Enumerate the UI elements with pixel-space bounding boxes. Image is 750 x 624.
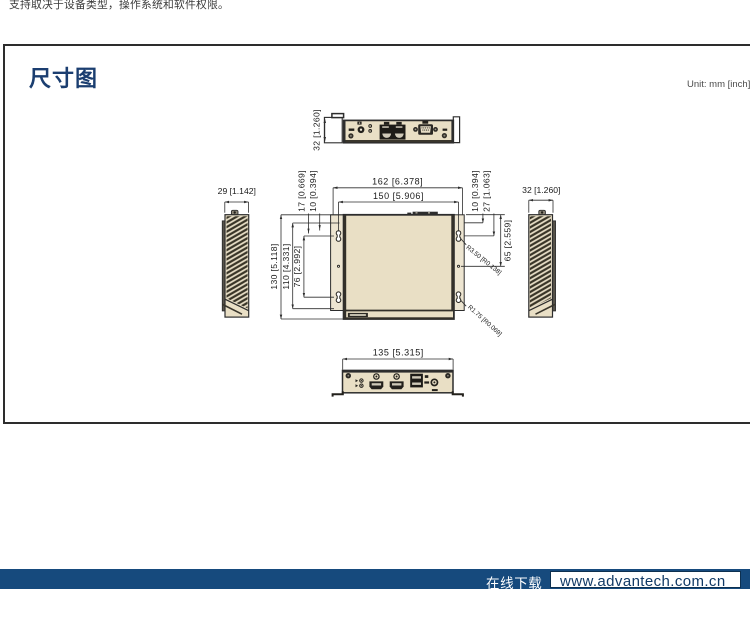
- svg-text:162 [6.378]: 162 [6.378]: [372, 177, 423, 187]
- svg-text:10 [0.394]: 10 [0.394]: [308, 170, 318, 212]
- svg-text:10 [0.394]: 10 [0.394]: [470, 170, 480, 212]
- svg-text:130 [5.118]: 130 [5.118]: [269, 243, 279, 289]
- svg-text:76 [2.992]: 76 [2.992]: [292, 246, 302, 288]
- svg-text:135 [5.315]: 135 [5.315]: [373, 348, 424, 358]
- svg-text:65 [2.559]: 65 [2.559]: [503, 220, 513, 262]
- svg-text:R1.75 [R0.069]: R1.75 [R0.069]: [466, 304, 503, 338]
- svg-text:110 [4.331]: 110 [4.331]: [281, 243, 291, 289]
- svg-text:29 [1.142]: 29 [1.142]: [218, 186, 256, 196]
- svg-text:17 [0.669]: 17 [0.669]: [296, 170, 306, 212]
- svg-text:32 [1.260]: 32 [1.260]: [522, 185, 560, 195]
- svg-text:150 [5.906]: 150 [5.906]: [373, 191, 424, 201]
- svg-text:27 [1.063]: 27 [1.063]: [482, 170, 492, 212]
- svg-text:R3.50 [R0.138]: R3.50 [R0.138]: [465, 244, 503, 277]
- svg-text:32 [1.260]: 32 [1.260]: [312, 109, 322, 151]
